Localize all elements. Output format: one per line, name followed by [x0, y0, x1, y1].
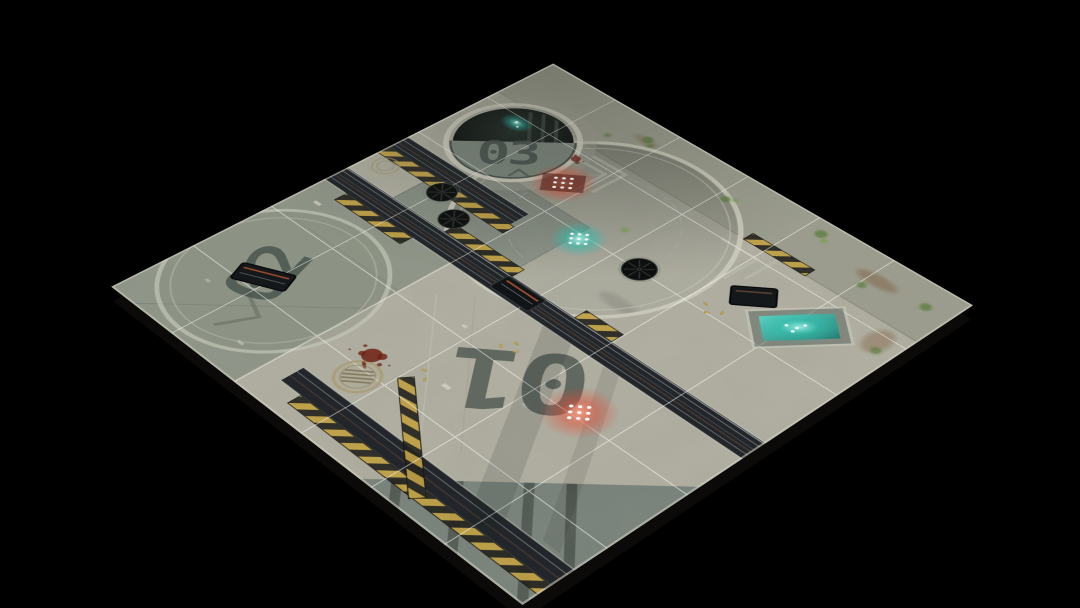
vignette-overlay — [111, 64, 973, 606]
mat-3d-scene: 02 — [111, 64, 973, 606]
product-photo-stage: 02 — [0, 0, 1080, 608]
battle-mat-surface: 02 — [111, 64, 973, 606]
battle-mat-artwork: 02 — [111, 64, 973, 606]
